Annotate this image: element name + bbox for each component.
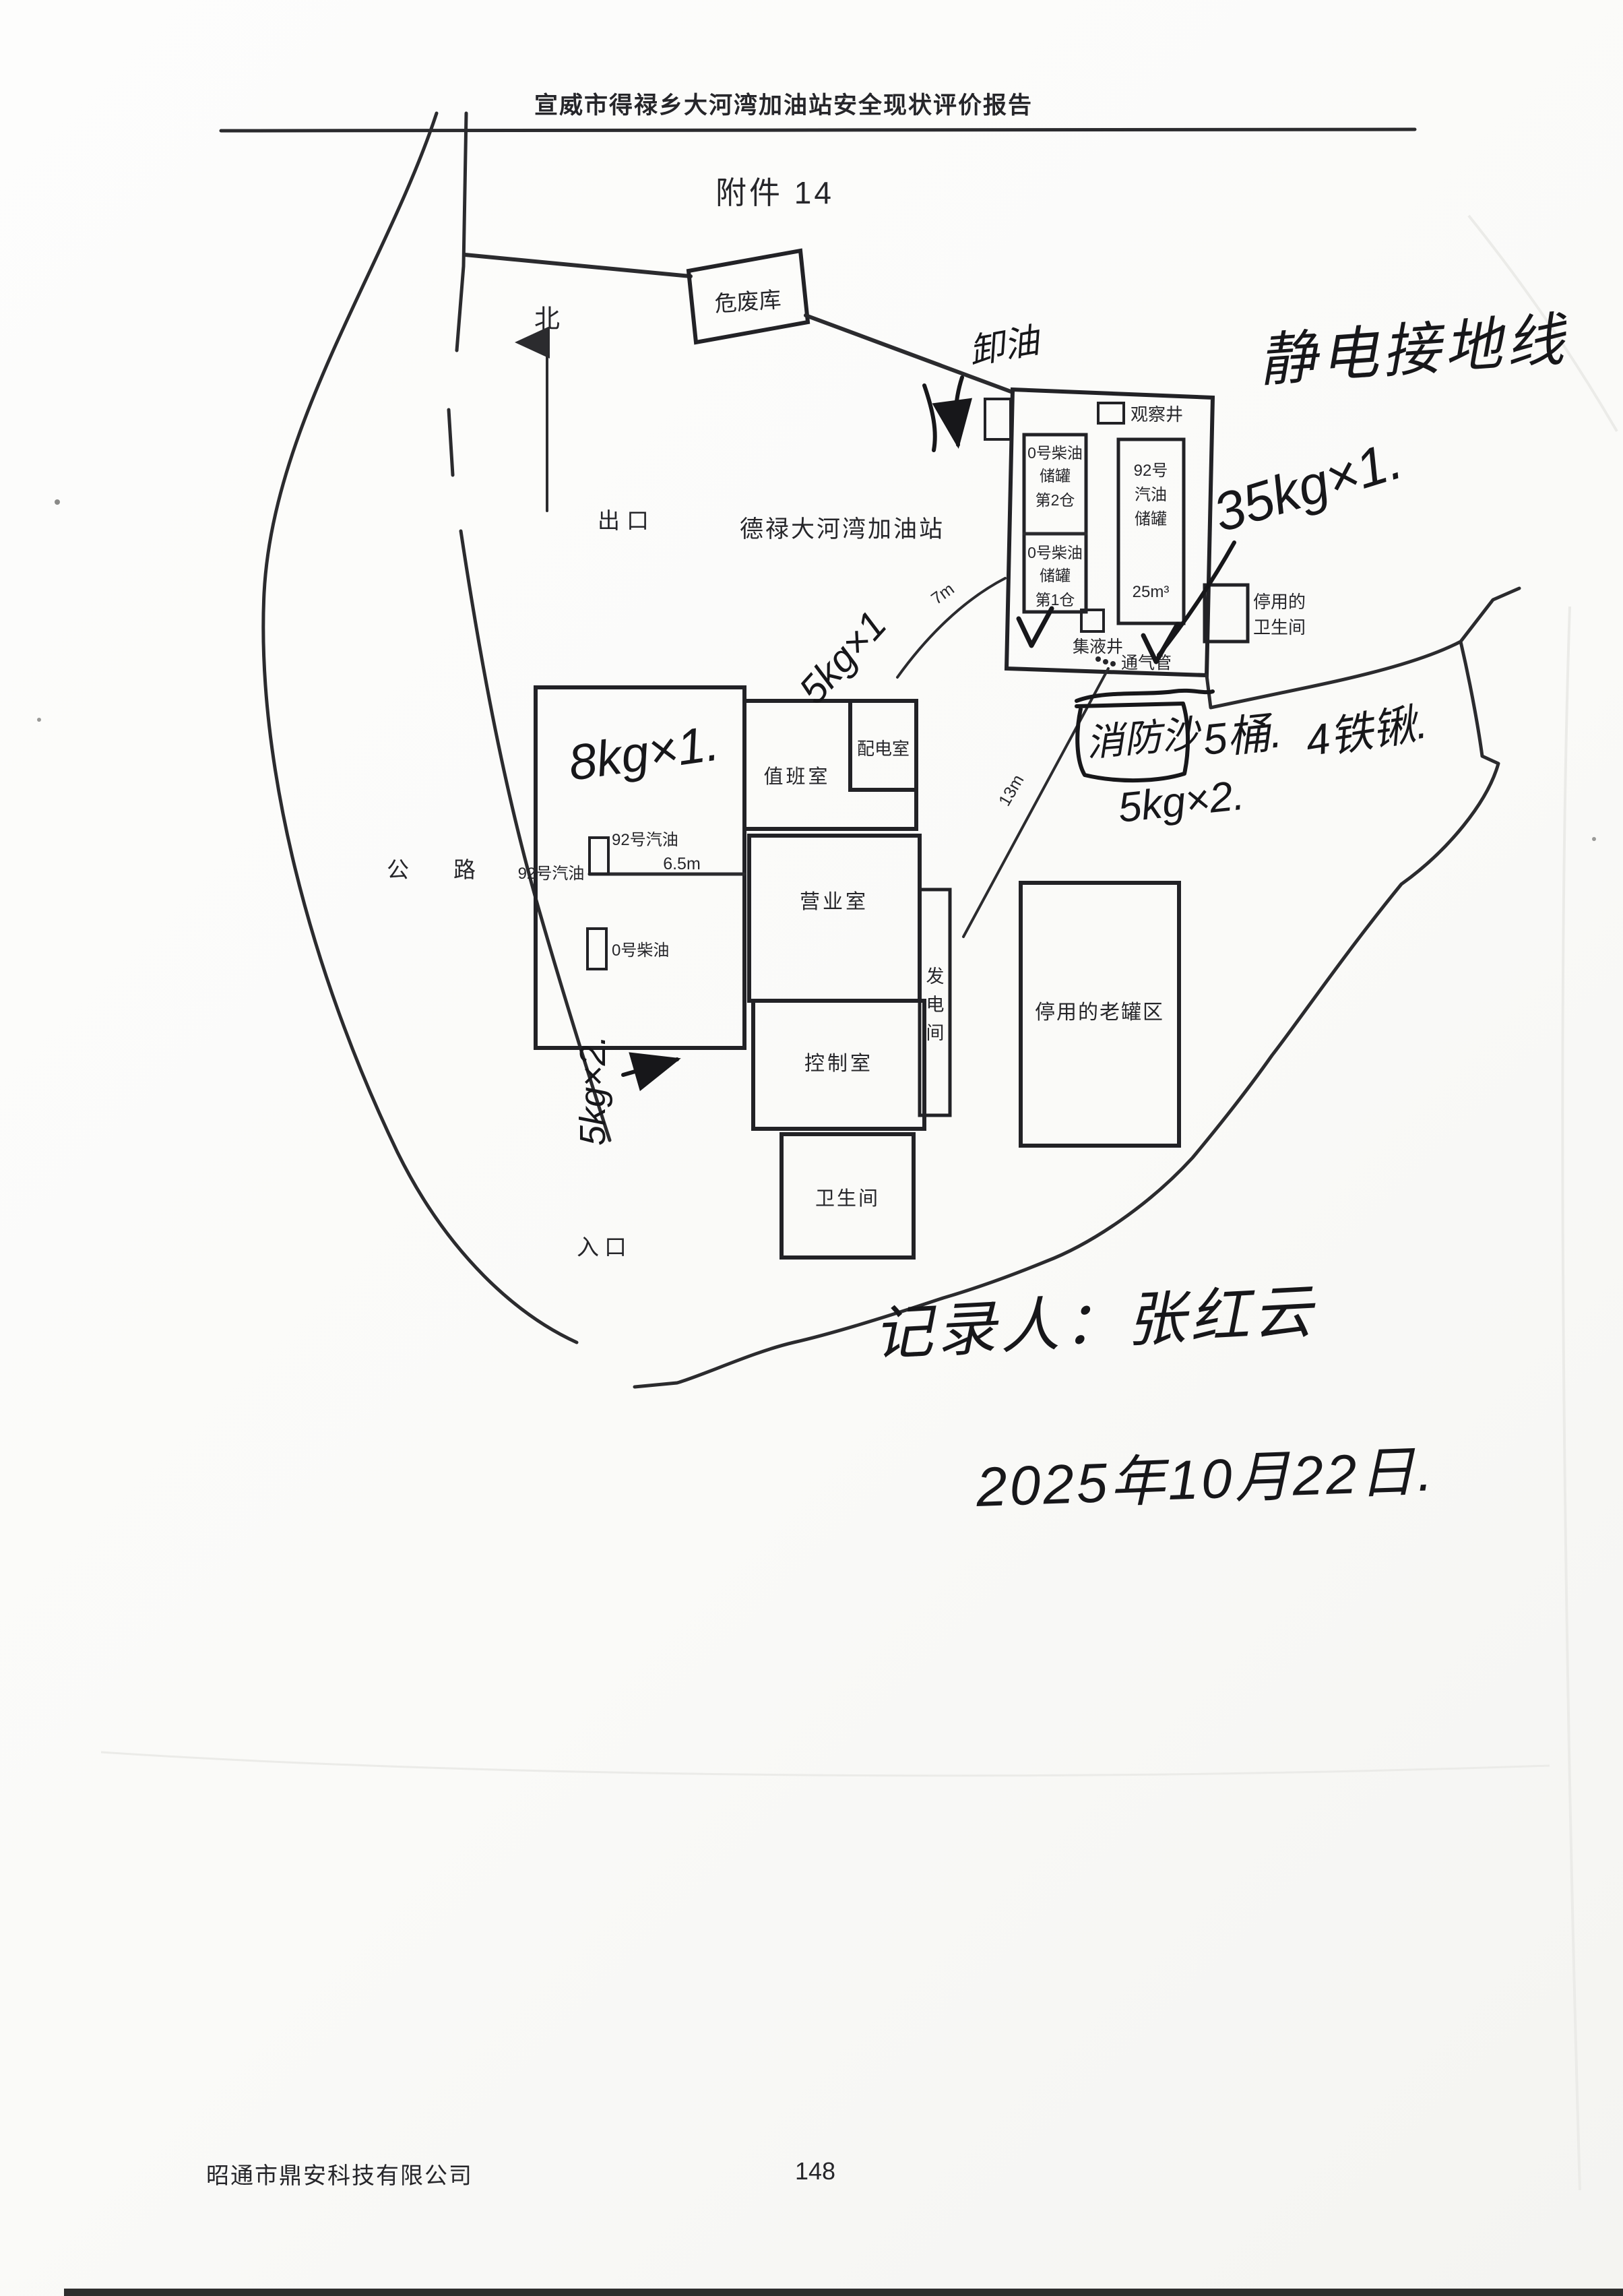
- d0-island-label: 0号柴油: [612, 941, 669, 960]
- dim13-label: 13m: [995, 772, 1028, 809]
- attachment-title: 附件 14: [715, 175, 834, 210]
- site-plan-drawing: 宣威市得禄乡大河湾加油站安全现状评价报告 附件 14 北 公 路 出口 入口 德…: [0, 0, 1623, 2296]
- hazwaste-store-label: 危废库: [713, 287, 782, 317]
- generator-room-char2: 电: [926, 995, 945, 1015]
- paper-crease: [101, 1752, 1550, 1776]
- dim65-label: 6.5m: [663, 855, 701, 873]
- handwritten-recorder-line: 记录人：张红云: [872, 1278, 1318, 1367]
- station-name-label: 德禄大河湾加油站: [740, 516, 945, 542]
- g92-dispenser-island: [590, 838, 608, 874]
- handwritten-date-line: 2025年10月22日.: [974, 1441, 1436, 1518]
- handwritten-unloading-arrow: [956, 377, 962, 445]
- observation-well-label: 观察井: [1131, 404, 1183, 425]
- diesel-tank2-line3: 第2仓: [1036, 491, 1075, 509]
- header-rule: [221, 129, 1415, 131]
- entrance-label: 入口: [577, 1235, 632, 1260]
- handwritten-5kg-powerroom-note: 5kg×1: [790, 603, 895, 712]
- handwritten-island-extinguisher-group: 5kg×2.: [573, 1035, 677, 1146]
- diesel-tank1-line3: 第1仓: [1036, 591, 1075, 609]
- generator-room-char1: 发: [926, 966, 945, 987]
- control-room-label: 控制室: [804, 1053, 873, 1075]
- road-label: 公 路: [387, 857, 476, 882]
- g92-side-label: 92号汽油: [518, 865, 585, 883]
- site-west-boundary-mid: [449, 410, 453, 475]
- scan-bottom-edge: [64, 2289, 1623, 2296]
- handwritten-topright-note: 静电接地线: [1256, 307, 1571, 394]
- generator-room-char3: 间: [926, 1023, 945, 1043]
- duty-room-label: 值班室: [763, 766, 830, 788]
- footer-page-number: 148: [795, 2157, 835, 2185]
- handwritten-checkmark-left: [1019, 609, 1052, 646]
- duty-room-box: [744, 701, 916, 829]
- handwritten-island-arrow: [623, 1059, 677, 1075]
- handwritten-firesand-group: 消防沙 5桶. 4铁锹. 5kg×2.: [1077, 691, 1430, 832]
- handwritten-shovels-note: 4铁锹.: [1302, 698, 1430, 765]
- report-header-title: 宣威市得禄乡大河湾加油站安全现状评价报告: [534, 92, 1033, 119]
- paper-crease: [1562, 607, 1580, 2190]
- scanned-report-page: 宣威市得禄乡大河湾加油站安全现状评价报告 附件 14 北 公 路 出口 入口 德…: [0, 0, 1623, 2296]
- north-label: 北: [534, 305, 560, 334]
- observation-well-box: [1098, 403, 1124, 423]
- dim7-label: 7m: [928, 580, 958, 609]
- scan-speck: [1592, 837, 1596, 841]
- disused-toilet-label-line2: 卫生间: [1253, 617, 1306, 638]
- diesel-tank2-line2: 储罐: [1040, 467, 1071, 485]
- unloading-point-box: [985, 399, 1011, 439]
- business-room-label: 营业室: [800, 891, 868, 913]
- gasoline-tank-line2: 汽油: [1135, 486, 1167, 504]
- diesel-tank1-line2: 储罐: [1040, 567, 1071, 584]
- exit-label: 出口: [598, 508, 656, 533]
- scan-speck: [55, 499, 60, 505]
- gasoline-tank-volume: 25m³: [1133, 583, 1170, 601]
- dim13-line: [963, 669, 1108, 937]
- g92-island-label: 92号汽油: [612, 831, 678, 849]
- diesel-tank2-line1: 0号柴油: [1027, 444, 1083, 462]
- gasoline-tank-line1: 92号: [1134, 462, 1168, 480]
- old-tank-area-label: 停用的老罐区: [1035, 1001, 1164, 1024]
- handwritten-unloading-note: 卸油: [966, 321, 1045, 372]
- collection-well-label: 集液井: [1073, 638, 1123, 656]
- vent-pipe-symbol: [1095, 656, 1116, 666]
- d0-dispenser-island: [587, 929, 606, 969]
- north-fence-line: [465, 255, 691, 276]
- road-outer-edge: [263, 113, 577, 1342]
- vent-pipe-label: 通气管: [1121, 654, 1172, 673]
- business-room-box: [749, 836, 920, 1001]
- scan-speck: [37, 718, 41, 722]
- toilet-label: 卫生间: [815, 1187, 880, 1210]
- gasoline-tank-line3: 储罐: [1135, 510, 1167, 528]
- handwritten-buckets-note: 5桶.: [1201, 708, 1284, 764]
- disused-toilet-box: [1205, 585, 1248, 642]
- footer-company: 昭通市鼎安科技有限公司: [206, 2163, 473, 2189]
- site-west-boundary-upper: [457, 113, 466, 350]
- handwritten-vertical-5kgx2-note: 5kg×2.: [573, 1035, 613, 1146]
- power-room-label: 配电室: [857, 739, 910, 759]
- handwritten-8kg-note: 8kg×1.: [565, 714, 723, 790]
- diesel-tank1-line1: 0号柴油: [1027, 544, 1083, 561]
- disused-toilet-label-line1: 停用的: [1253, 592, 1306, 612]
- handwritten-35kg-note: 35kg×1.: [1207, 429, 1409, 543]
- handwritten-unloading-stroke: [924, 385, 935, 450]
